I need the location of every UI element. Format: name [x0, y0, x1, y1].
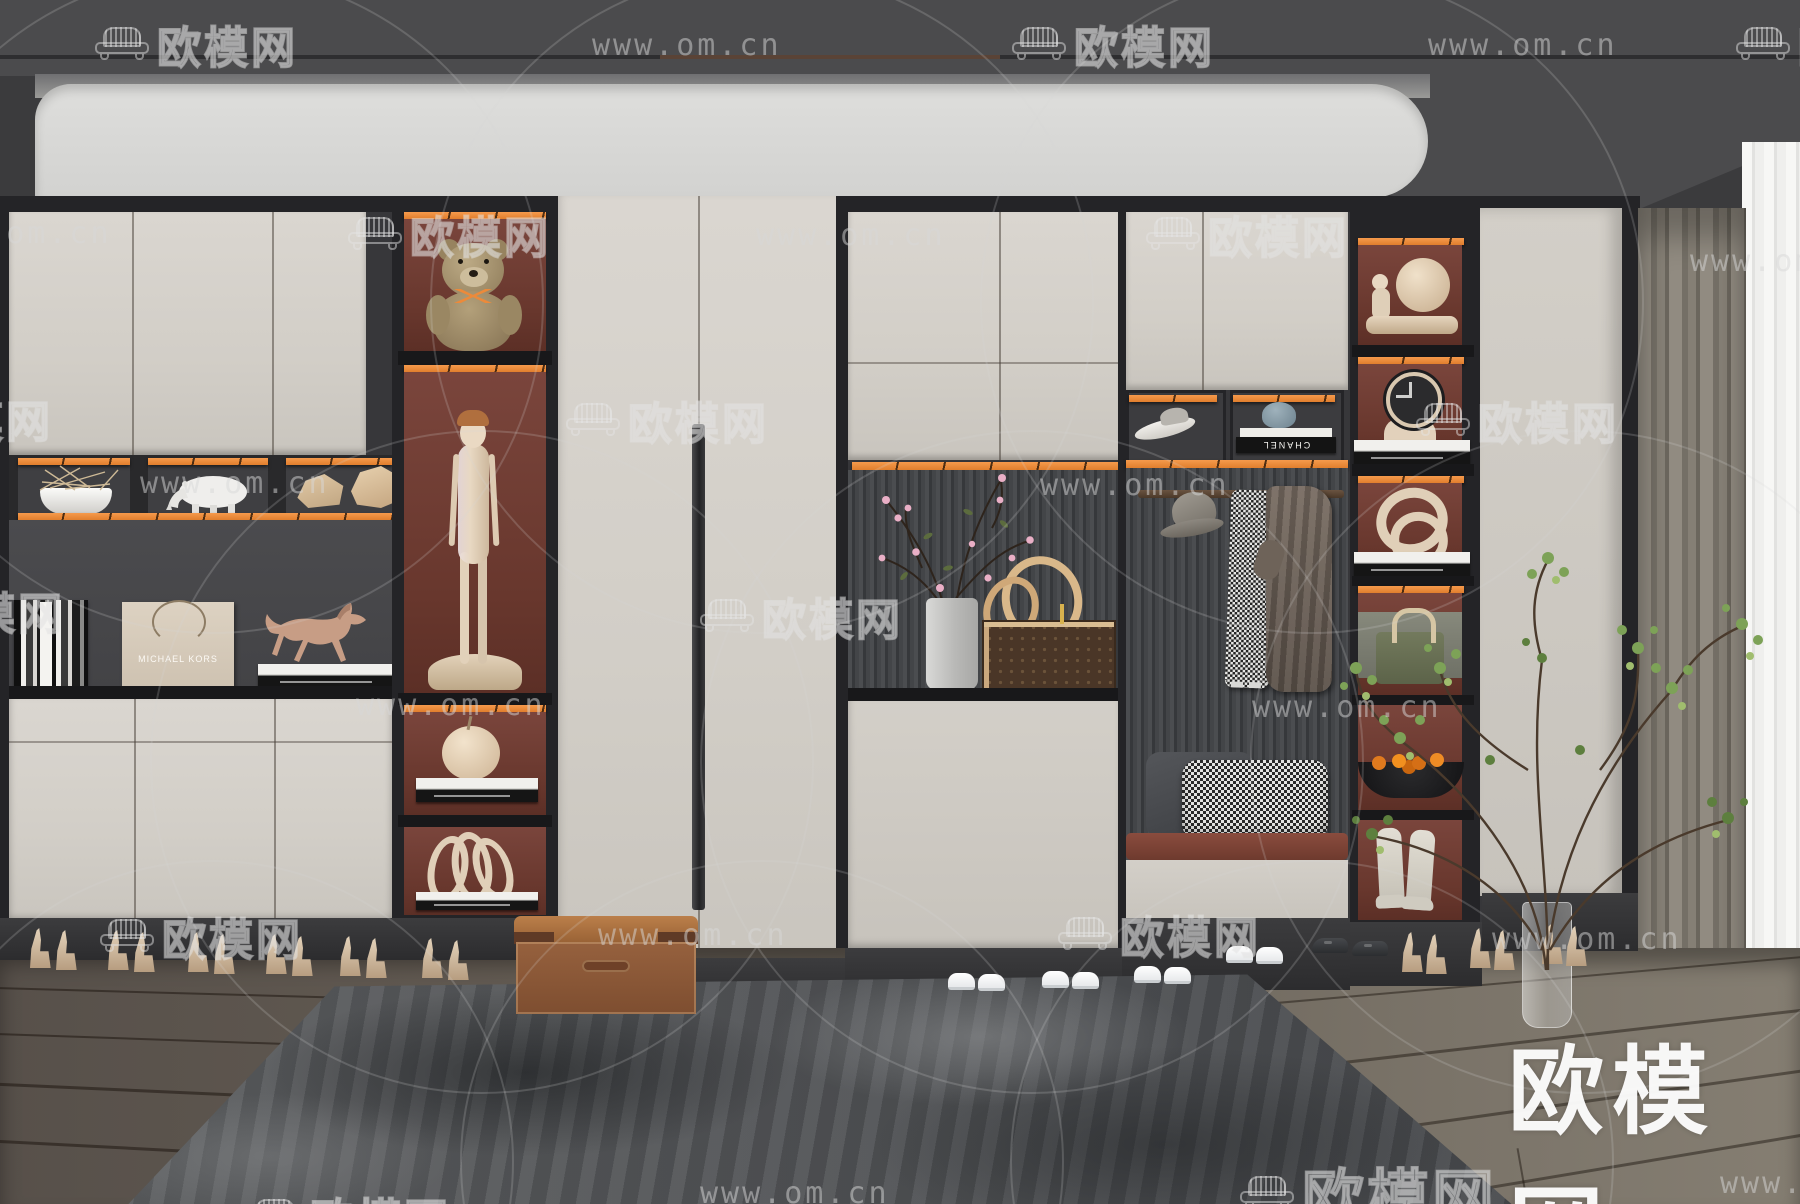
clock-hand-minute: [1409, 382, 1412, 398]
book-spine-vogue: VOGUE: [40, 602, 52, 686]
shoe: [340, 936, 362, 976]
heels-pair: [108, 930, 174, 976]
sectionB-upper-seam-h: [848, 362, 1122, 364]
ceiling-dark-band: [0, 0, 1800, 76]
shoe: [1256, 947, 1283, 964]
shoe: [292, 936, 314, 976]
teddy-arm: [498, 295, 522, 335]
book-stack: [1354, 440, 1470, 464]
teddy-eye: [458, 259, 463, 264]
ball: [1396, 258, 1450, 312]
niche-shelf: [398, 351, 552, 365]
decor-jar: [1262, 402, 1296, 428]
niche-shelf: [398, 693, 552, 705]
clock-face: [1386, 372, 1442, 428]
shoe: [108, 930, 130, 970]
teddy-arm: [426, 295, 450, 335]
interior-render-scene: VOGUE MICHAEL KORS: [0, 0, 1800, 1204]
box-handle: [582, 960, 630, 972]
teddy-eye: [484, 259, 489, 264]
led-strip: [1358, 238, 1464, 245]
sectionC-upper-seam: [1202, 212, 1204, 390]
teddy-nose: [469, 270, 478, 277]
michael-kors-bag: MICHAEL KORS: [122, 602, 234, 688]
ceiling-curved-panel: [35, 84, 1428, 198]
big-watermark-text: 欧模网: [1508, 1014, 1800, 1204]
left-lower-seam-1: [134, 699, 136, 923]
figure-leg: [460, 552, 469, 664]
decor-bowl-twigs: [30, 462, 125, 492]
shoe: [448, 940, 470, 980]
sectionB-upper-seam-v: [999, 212, 1001, 460]
ball-figure-sculpture: [1360, 252, 1460, 344]
shoe: [1072, 972, 1099, 989]
led-strip: [1233, 395, 1335, 402]
led-strip: [404, 212, 546, 219]
teddy-bear: [420, 233, 530, 351]
box-front: [516, 942, 696, 1014]
chanel-book: CHANEL: [1236, 437, 1336, 453]
shoe: [1134, 966, 1161, 983]
figure-dome-base: [428, 654, 522, 690]
left-upper-cabinets: [9, 212, 366, 455]
sculpture-base: [1366, 316, 1458, 334]
rhino-sculpture: [158, 468, 258, 516]
led-strip: [286, 458, 392, 465]
figure-leg: [478, 552, 487, 664]
figure-torso: [458, 444, 489, 564]
sectionC-upper-cabinets: [1126, 212, 1348, 390]
niche2-shelf: [1352, 345, 1474, 357]
left-lower-cabinets: [9, 699, 392, 923]
sectionB-shelf: [848, 688, 1122, 701]
flower-vase: [926, 598, 978, 690]
left-upper-seam-1: [132, 212, 134, 455]
left-shelf-bottom: [9, 686, 392, 699]
wardrobe-handle: [692, 424, 705, 910]
shoe: [266, 934, 288, 974]
heels-pair: [266, 934, 332, 980]
niche2-shelf: [1352, 464, 1474, 476]
chanel-book-title: CHANEL: [1236, 440, 1336, 450]
divider-frame: [1118, 196, 1126, 962]
book-stack: [416, 892, 538, 910]
shoe: [366, 938, 388, 978]
led-strip: [404, 705, 546, 712]
heels-pair: [188, 932, 254, 978]
led-strip: [148, 458, 268, 465]
shoe: [1042, 971, 1069, 988]
left-lower-seam-h: [9, 741, 392, 743]
led-strip: [1129, 395, 1217, 402]
horse-sculpture: [262, 602, 396, 668]
shoe: [30, 928, 52, 968]
shoe: [56, 930, 78, 970]
designer-bag-body: [982, 620, 1116, 694]
sneakers-pair: [948, 973, 1018, 1019]
figure-cap: [457, 410, 489, 426]
ceiling-track-wood-segment: [660, 55, 1000, 59]
left-lower-seam-2: [274, 699, 276, 923]
shoe: [948, 973, 975, 990]
led-strip: [1358, 357, 1464, 364]
sectionB-lower-panel: [848, 701, 1122, 951]
niche-shelf: [398, 815, 552, 827]
plant-branches: [1280, 520, 1800, 990]
heels-pair: [422, 938, 488, 984]
left-wall-edge: [0, 196, 9, 940]
heels-pair: [30, 928, 96, 974]
shoe: [1226, 946, 1253, 963]
designer-bag-zipper: [1060, 604, 1064, 624]
heels-pair: [340, 936, 406, 982]
sneakers-pair: [1042, 971, 1112, 1017]
white-book: [1240, 428, 1332, 437]
left-upper-seam-2: [272, 212, 274, 455]
led-strip: [1358, 476, 1464, 483]
shoe: [134, 932, 156, 972]
shoe: [1164, 967, 1191, 984]
leather-box: [514, 916, 698, 1014]
shoe: [422, 938, 444, 978]
led-strip: [1126, 460, 1348, 468]
apple-sculpture: [442, 726, 500, 780]
led-strip: [404, 365, 546, 372]
led-strip: [18, 513, 392, 520]
divider-frame: [836, 196, 848, 962]
abstract-figure-sculpture: [410, 392, 540, 692]
shoe: [188, 932, 210, 972]
book-stack: [416, 778, 538, 802]
sneakers-pair: [1134, 966, 1204, 1012]
shoe: [978, 974, 1005, 991]
shoe: [214, 934, 236, 974]
sectionB-upper-cabinets: [848, 212, 1122, 460]
bag-handle-icon: [152, 600, 206, 644]
figure-arm: [489, 454, 500, 546]
book-stack: [258, 664, 406, 688]
michael-kors-label: MICHAEL KORS: [122, 654, 234, 664]
